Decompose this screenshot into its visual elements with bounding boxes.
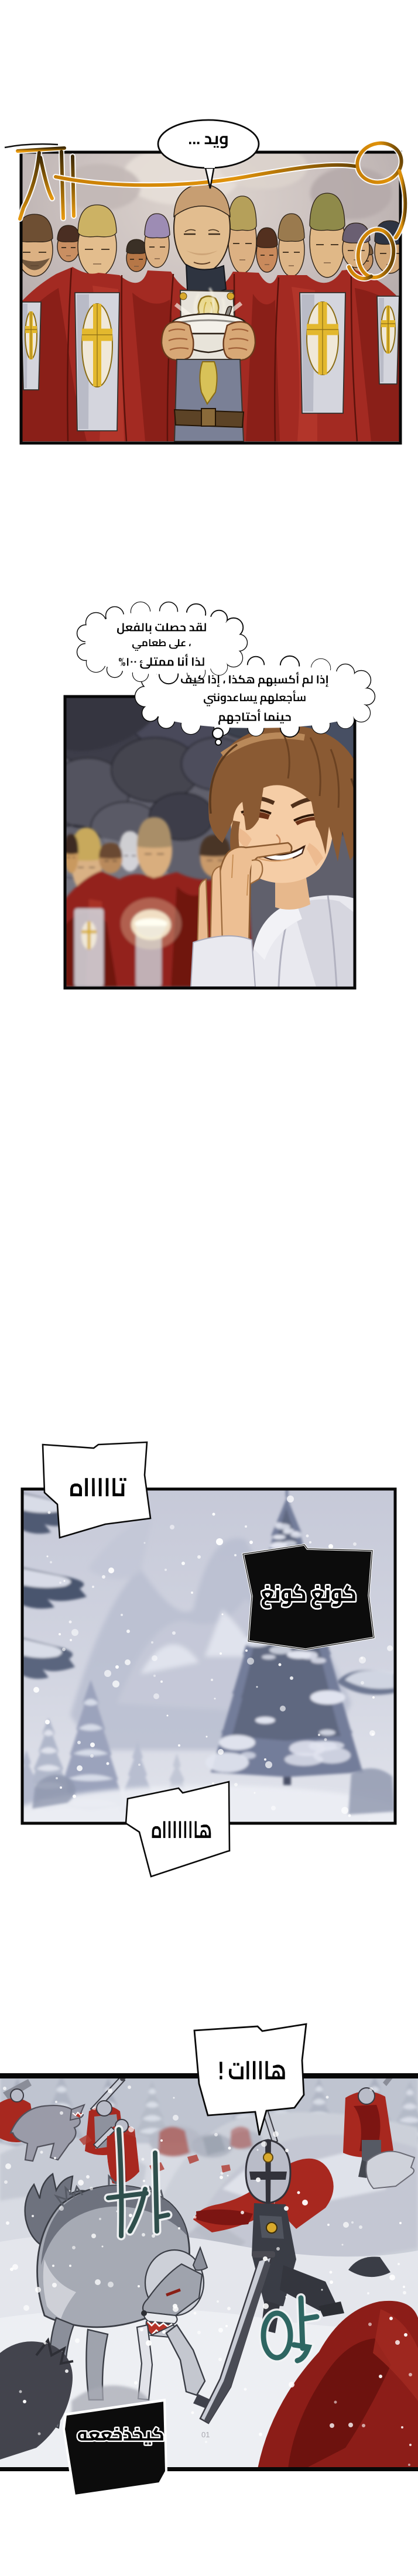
svg-text:01: 01 bbox=[201, 2430, 210, 2439]
